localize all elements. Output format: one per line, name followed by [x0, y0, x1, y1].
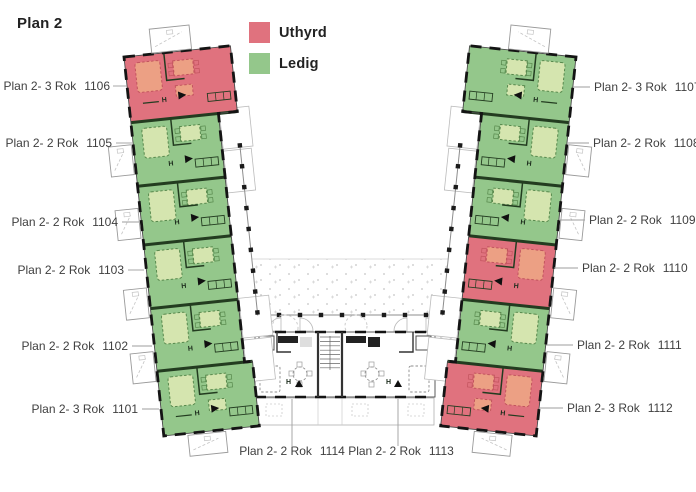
- column: [298, 313, 302, 317]
- balcony: [566, 145, 592, 177]
- column: [453, 185, 458, 190]
- svg-text:H: H: [194, 410, 200, 417]
- apartment-unit-1104[interactable]: H: [138, 177, 232, 245]
- column: [447, 247, 452, 252]
- stairwell: [444, 148, 476, 193]
- apartment-unit-1110[interactable]: H: [462, 236, 556, 309]
- apartment-unit-1112[interactable]: H: [441, 361, 543, 436]
- column: [382, 313, 386, 317]
- apartment-label-1108: Plan 2- 2 Rok1108: [593, 136, 696, 150]
- column: [442, 289, 447, 294]
- svg-text:H: H: [513, 283, 519, 290]
- column: [424, 313, 428, 317]
- door-swing: [300, 318, 313, 331]
- apartment-unit-1105[interactable]: H: [131, 113, 225, 186]
- column: [248, 247, 253, 252]
- column: [451, 206, 456, 211]
- column: [242, 185, 247, 190]
- svg-text:H: H: [507, 345, 513, 352]
- apartment-unit-1101[interactable]: H: [157, 361, 259, 436]
- column: [458, 143, 463, 148]
- apartment-unit-1108[interactable]: H: [475, 113, 569, 186]
- column: [240, 164, 245, 169]
- apartment-unit-1107[interactable]: H: [463, 46, 576, 123]
- svg-text:H: H: [286, 379, 291, 386]
- apartment-unit-1111[interactable]: H: [455, 299, 549, 371]
- apartment-label-1106: Plan 2- 3 Rok1106: [3, 79, 110, 93]
- apartment-label-1114: Plan 2- 2 Rok1114: [239, 444, 345, 458]
- svg-text:H: H: [168, 160, 174, 167]
- apartment-unit-1106[interactable]: H: [124, 46, 237, 123]
- bottom-building-bar: HH: [255, 332, 435, 425]
- column: [456, 164, 461, 169]
- column: [445, 268, 450, 273]
- terrace-strip: [256, 398, 434, 425]
- balcony: [551, 288, 577, 320]
- door-swing: [394, 318, 407, 331]
- apartment-label-1102: Plan 2- 2 Rok1102: [21, 339, 128, 353]
- apartment-unit-1102[interactable]: H: [150, 299, 244, 371]
- balcony: [149, 25, 191, 53]
- apartment-label-1105: Plan 2- 2 Rok1105: [5, 136, 112, 150]
- apartment-label-1101: Plan 2- 3 Rok1101: [31, 402, 138, 416]
- apartment-label-1107: Plan 2- 3 Rok1107: [594, 80, 696, 94]
- apartment-label-1109: Plan 2- 2 Rok1109: [589, 213, 696, 227]
- balcony: [123, 288, 149, 320]
- apartment-label-1110: Plan 2- 2 Rok1110: [582, 261, 688, 275]
- svg-text:H: H: [188, 345, 194, 352]
- column: [237, 143, 242, 148]
- svg-text:H: H: [533, 97, 539, 104]
- svg-text:H: H: [174, 219, 180, 226]
- apartment-label-1111: Plan 2- 2 Rok1111: [577, 338, 682, 352]
- apartment-unit-1103[interactable]: H: [144, 236, 238, 309]
- column: [277, 313, 281, 317]
- balcony: [188, 431, 228, 456]
- courtyard-paving: [252, 259, 448, 314]
- column: [253, 289, 258, 294]
- apartment-label-1112: Plan 2- 3 Rok1112: [567, 401, 673, 415]
- apartment-label-1113: Plan 2- 2 Rok1113: [348, 444, 454, 458]
- balcony: [115, 208, 141, 240]
- column: [340, 313, 344, 317]
- apartment-label-1104: Plan 2- 2 Rok1104: [11, 215, 118, 229]
- balcony: [508, 25, 550, 53]
- column: [255, 310, 260, 315]
- balcony: [108, 145, 134, 177]
- floor-plan: HHHHHHHHHHHHHHPlan 2- 3 Rok1106Plan 2- 2…: [0, 0, 696, 492]
- balcony: [472, 431, 512, 456]
- column: [319, 313, 323, 317]
- balcony: [130, 352, 156, 384]
- column: [440, 310, 445, 315]
- svg-text:H: H: [386, 379, 391, 386]
- column: [246, 226, 251, 231]
- stairwell: [223, 148, 255, 193]
- column: [251, 268, 256, 273]
- apartment-unit-1109[interactable]: H: [469, 177, 563, 245]
- svg-text:H: H: [526, 160, 532, 167]
- apartment-label-1103: Plan 2- 2 Rok1103: [17, 263, 124, 277]
- balcony: [544, 352, 570, 384]
- svg-text:H: H: [500, 410, 506, 417]
- right-wing: HHHHHH: [415, 20, 603, 462]
- balcony: [559, 208, 585, 240]
- svg-text:H: H: [520, 219, 526, 226]
- svg-text:H: H: [181, 283, 187, 290]
- floor-plan-page: Plan 2 Uthyrd Ledig HHHHHHHHHHHHHHPlan 2…: [0, 0, 696, 492]
- svg-text:H: H: [161, 97, 167, 104]
- column: [403, 313, 407, 317]
- column: [449, 226, 454, 231]
- column: [244, 206, 249, 211]
